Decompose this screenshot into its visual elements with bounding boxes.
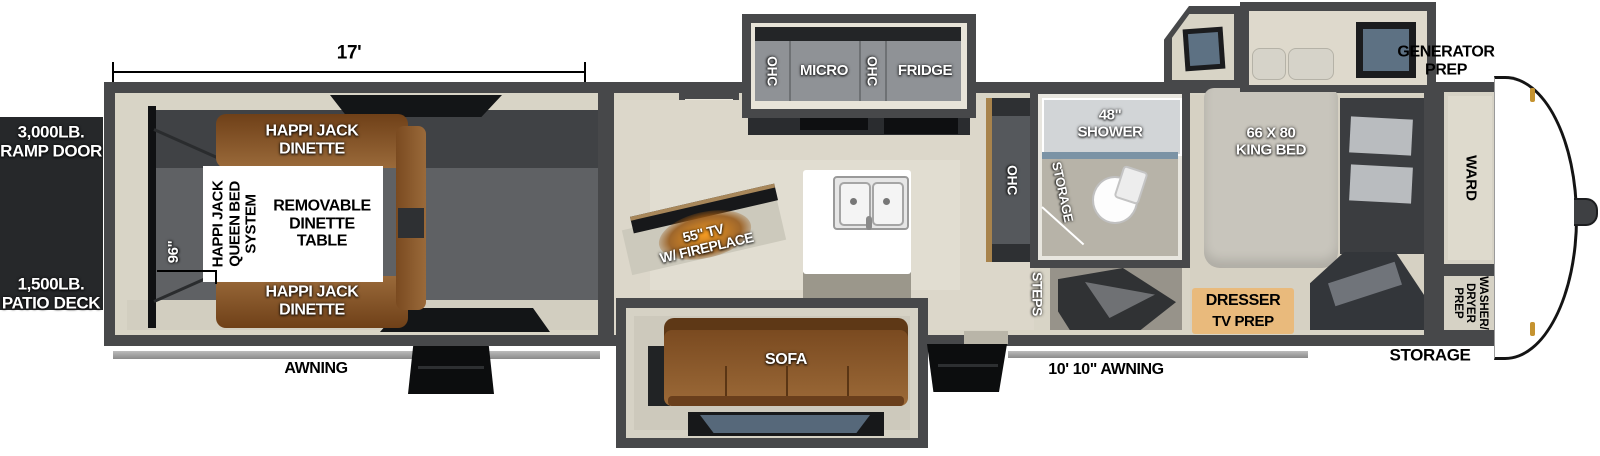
storage-front-label: STORAGE <box>1390 347 1471 366</box>
sofa-label: SOFA <box>765 351 807 369</box>
kitchen-slide-toekick <box>755 27 961 41</box>
sink-drain-right <box>883 198 890 205</box>
awning-main-label: 10' 10" AWNING <box>1048 361 1163 379</box>
pillow-right <box>1288 48 1334 80</box>
awning-rear-bar <box>113 351 600 359</box>
ohc-island-label: OHC <box>1004 165 1019 195</box>
generator-prep-label: GENERATOR PREP <box>1397 43 1494 78</box>
entry-step-main-tread <box>938 364 998 367</box>
dresser-tv-prep-label: TV PREP <box>1212 314 1273 331</box>
ramp-door-label: 3,000LB. RAMP DOOR <box>0 123 102 160</box>
garage-dimension-tick-left <box>112 62 114 82</box>
cabinet-divider-2 <box>859 41 861 101</box>
island-shadow <box>803 272 911 298</box>
garage-width-tick-v <box>215 270 217 284</box>
entry-step-main <box>927 344 1007 392</box>
shower-label: 48" SHOWER <box>1077 108 1142 141</box>
garage-dimension-tick-right <box>584 62 586 82</box>
dinette-side-gap <box>398 208 424 238</box>
clearance-light-bottom <box>1530 322 1535 336</box>
dinette-top-label: HAPPI JACK DINETTE <box>266 122 359 157</box>
sofa-front-edge <box>668 396 904 406</box>
shower-glass <box>1042 152 1178 159</box>
ramp-door-frame <box>148 106 156 328</box>
bed-side-pane-top <box>1349 116 1413 155</box>
front-cap <box>1494 76 1578 360</box>
king-bed-label: 66 X 80 KING BED <box>1236 126 1306 159</box>
window-bump-glass <box>1188 32 1220 66</box>
clearance-light-top <box>1530 88 1535 102</box>
ohc-mid-label: OHC <box>864 56 879 86</box>
garage-partition-wall <box>598 90 614 346</box>
garage-width-tick-h <box>157 270 217 272</box>
king-bed <box>1204 88 1338 268</box>
garage-width-label: 96" <box>166 241 183 264</box>
removable-table-label: REMOVABLE DINETTE TABLE <box>273 198 370 251</box>
floorplan-canvas: 17' 3,000LB. RAMP DOOR 1,500LB. PATIO DE… <box>0 0 1600 456</box>
sink-drain-left <box>850 198 857 205</box>
dresser-label: DRESSER <box>1206 292 1281 310</box>
dinette-bottom-label: HAPPI JACK DINETTE <box>266 283 359 318</box>
garage-dimension-line <box>113 71 585 73</box>
cabinet-divider-3 <box>885 41 887 101</box>
steps-label: STEPS <box>1029 272 1044 316</box>
washer-dryer-label: WASHER/ DRYER PREP <box>1451 276 1489 330</box>
fridge-label: FRIDGE <box>898 63 952 80</box>
entry-step-rear-tread <box>418 366 484 369</box>
cabinet-divider-1 <box>789 41 791 101</box>
ohc-left-label: OHC <box>764 56 779 86</box>
ohc-cabinet-top <box>992 98 1032 116</box>
awning-main-bar <box>1008 351 1308 358</box>
sofa-slide-window-glass <box>700 415 870 433</box>
wardrobe-label: WARD <box>1462 155 1479 201</box>
entry-step-rear <box>408 346 494 394</box>
queen-bed-system-label: HAPPI JACK QUEEN BED SYSTEM <box>210 181 260 268</box>
ohc-cabinet-bottom <box>992 244 1032 262</box>
bed-side-pane-bottom <box>1349 164 1413 203</box>
awning-rear-label: AWNING <box>284 360 347 378</box>
entry-door-gap <box>964 331 1008 344</box>
micro-label: MICRO <box>800 63 848 80</box>
sink-faucet <box>866 216 872 230</box>
kingpin <box>1574 198 1598 226</box>
garage-length-label: 17' <box>337 44 361 65</box>
pillow-left <box>1252 48 1286 80</box>
patio-deck-label: 1,500LB. PATIO DECK <box>2 275 100 312</box>
